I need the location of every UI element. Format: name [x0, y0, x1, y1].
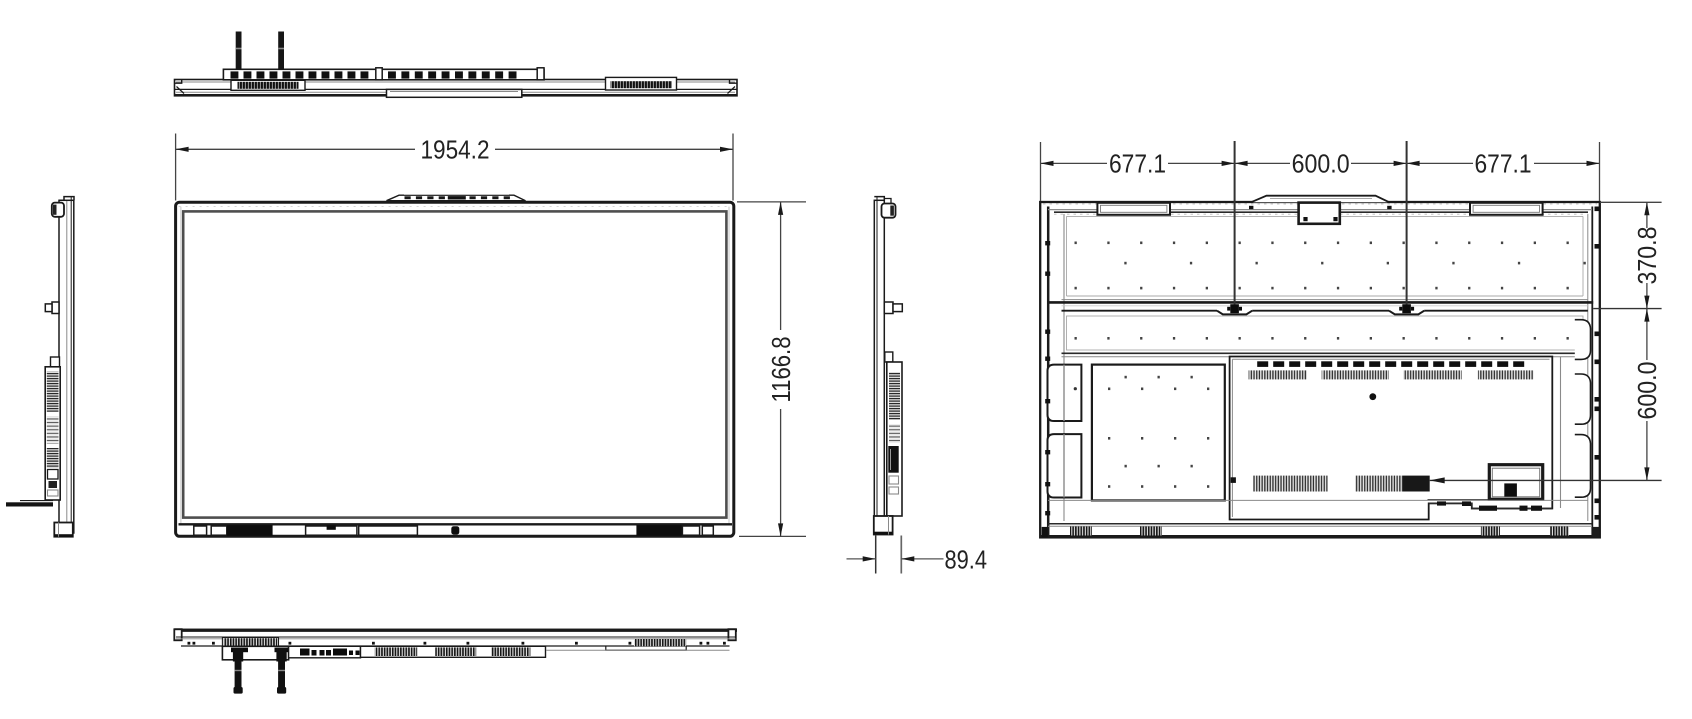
- svg-text:677.1: 677.1: [1475, 151, 1532, 179]
- svg-text:1954.2: 1954.2: [421, 137, 490, 165]
- svg-text:677.1: 677.1: [1109, 151, 1166, 179]
- svg-text:600.0: 600.0: [1634, 362, 1662, 420]
- svg-text:600.0: 600.0: [1292, 151, 1350, 179]
- svg-text:370.8: 370.8: [1634, 227, 1662, 285]
- svg-text:89.4: 89.4: [945, 546, 988, 574]
- svg-text:1166.8: 1166.8: [768, 337, 796, 403]
